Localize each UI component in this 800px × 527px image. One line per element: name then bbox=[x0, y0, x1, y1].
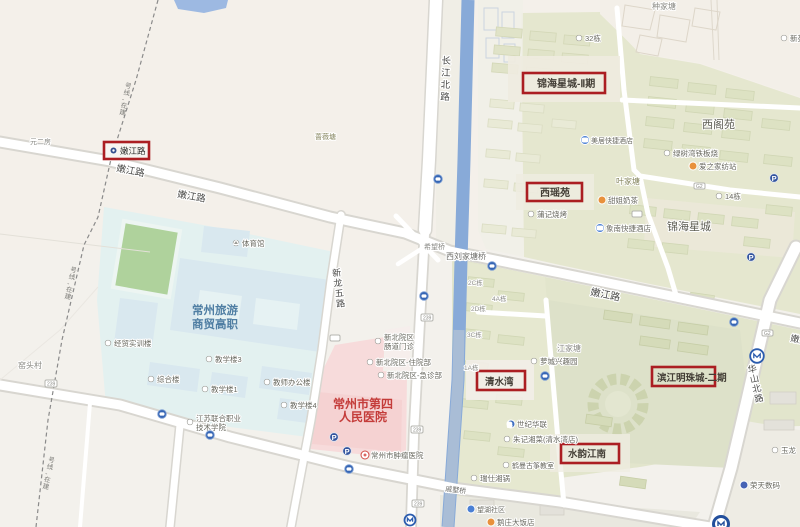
svg-text:萝城兴趣园: 萝城兴趣园 bbox=[540, 356, 578, 366]
svg-text:常州市肿瘤医院: 常州市肿瘤医院 bbox=[371, 450, 424, 460]
svg-text:B: B bbox=[508, 423, 513, 429]
svg-text:新苑: 新苑 bbox=[790, 33, 800, 43]
svg-text:教学楼4: 教学楼4 bbox=[290, 400, 317, 410]
svg-text:G2: G2 bbox=[696, 184, 703, 190]
svg-text:教师办公楼: 教师办公楼 bbox=[273, 377, 311, 387]
svg-text:2C栋: 2C栋 bbox=[468, 278, 483, 287]
svg-text:玉龙: 玉龙 bbox=[781, 445, 796, 455]
svg-text:锦海星城: 锦海星城 bbox=[667, 219, 711, 233]
svg-text:甜姐奶茶: 甜姐奶茶 bbox=[608, 195, 638, 205]
svg-text:32栋: 32栋 bbox=[585, 33, 601, 43]
svg-text:世纪华联: 世纪华联 bbox=[517, 419, 547, 429]
svg-text:希望桥: 希望桥 bbox=[424, 242, 445, 251]
svg-text:嫩江路: 嫩江路 bbox=[120, 146, 146, 156]
svg-text:新北院区-住院部: 新北院区-住院部 bbox=[376, 357, 431, 367]
svg-text:1A栋: 1A栋 bbox=[464, 363, 479, 372]
svg-text:蒲记烧烤: 蒲记烧烤 bbox=[537, 209, 567, 219]
svg-text:教学楼1: 教学楼1 bbox=[211, 384, 238, 394]
svg-text:滨江明珠城-二期: 滨江明珠城-二期 bbox=[657, 372, 727, 384]
svg-text:P: P bbox=[749, 253, 754, 262]
svg-text:239: 239 bbox=[414, 502, 423, 508]
svg-text:水韵江南: 水韵江南 bbox=[568, 448, 607, 460]
svg-text:新北院区-急诊部: 新北院区-急诊部 bbox=[387, 370, 442, 380]
svg-text:239: 239 bbox=[47, 382, 56, 388]
svg-text:14栋: 14栋 bbox=[725, 191, 741, 201]
svg-text:绿树湾铁板烧: 绿树湾铁板烧 bbox=[673, 148, 718, 158]
svg-text:鹤曼古筝教室: 鹤曼古筝教室 bbox=[512, 461, 554, 470]
svg-text:教学楼3: 教学楼3 bbox=[215, 354, 242, 364]
svg-text:叶家塘: 叶家塘 bbox=[616, 176, 640, 186]
svg-text:西瑶苑: 西瑶苑 bbox=[540, 186, 570, 199]
svg-text:荣天数码: 荣天数码 bbox=[750, 480, 780, 490]
svg-text:新北院区肠道门诊: 新北院区肠道门诊 bbox=[384, 332, 414, 351]
svg-text:239: 239 bbox=[423, 316, 432, 322]
svg-text:2D栋: 2D栋 bbox=[471, 304, 486, 313]
svg-text:蔷薇塘: 蔷薇塘 bbox=[315, 132, 336, 141]
svg-text:经贸实训楼: 经贸实训楼 bbox=[114, 338, 152, 348]
svg-text:美居快捷酒店: 美居快捷酒店 bbox=[591, 136, 633, 145]
svg-text:体育馆: 体育馆 bbox=[242, 238, 265, 248]
svg-text:望湖社区: 望湖社区 bbox=[477, 505, 505, 514]
svg-text:3C栋: 3C栋 bbox=[467, 330, 482, 339]
svg-text:象南快捷酒店: 象南快捷酒店 bbox=[606, 223, 651, 233]
svg-text:爱之家纺站: 爱之家纺站 bbox=[699, 161, 737, 171]
svg-text:G2: G2 bbox=[764, 331, 771, 337]
svg-text:4A栋: 4A栋 bbox=[492, 294, 507, 303]
svg-text:江家塘: 江家塘 bbox=[557, 343, 581, 353]
svg-text:P: P bbox=[345, 447, 350, 456]
svg-text:P: P bbox=[772, 174, 777, 183]
svg-text:239: 239 bbox=[413, 428, 422, 434]
svg-text:西刘家塘桥: 西刘家塘桥 bbox=[446, 251, 486, 261]
svg-text:窑头村: 窑头村 bbox=[18, 360, 42, 370]
svg-text:清水湾: 清水湾 bbox=[485, 376, 514, 388]
svg-text:种家塘: 种家塘 bbox=[652, 1, 676, 11]
svg-text:常州市第四人民医院: 常州市第四人民医院 bbox=[333, 396, 393, 424]
svg-text:锦海星城-Ⅱ期: 锦海星城-Ⅱ期 bbox=[537, 77, 595, 90]
svg-text:鹅庄大饭店: 鹅庄大饭店 bbox=[497, 517, 535, 527]
svg-text:P: P bbox=[332, 433, 337, 442]
svg-text:瑞仕湘锅: 瑞仕湘锅 bbox=[480, 473, 510, 483]
svg-text:综合楼: 综合楼 bbox=[157, 374, 180, 384]
svg-text:西阁苑: 西阁苑 bbox=[702, 117, 735, 131]
svg-text:元二房: 元二房 bbox=[30, 137, 51, 146]
svg-text:朱记湘菜(清水湾店): 朱记湘菜(清水湾店) bbox=[513, 434, 578, 444]
